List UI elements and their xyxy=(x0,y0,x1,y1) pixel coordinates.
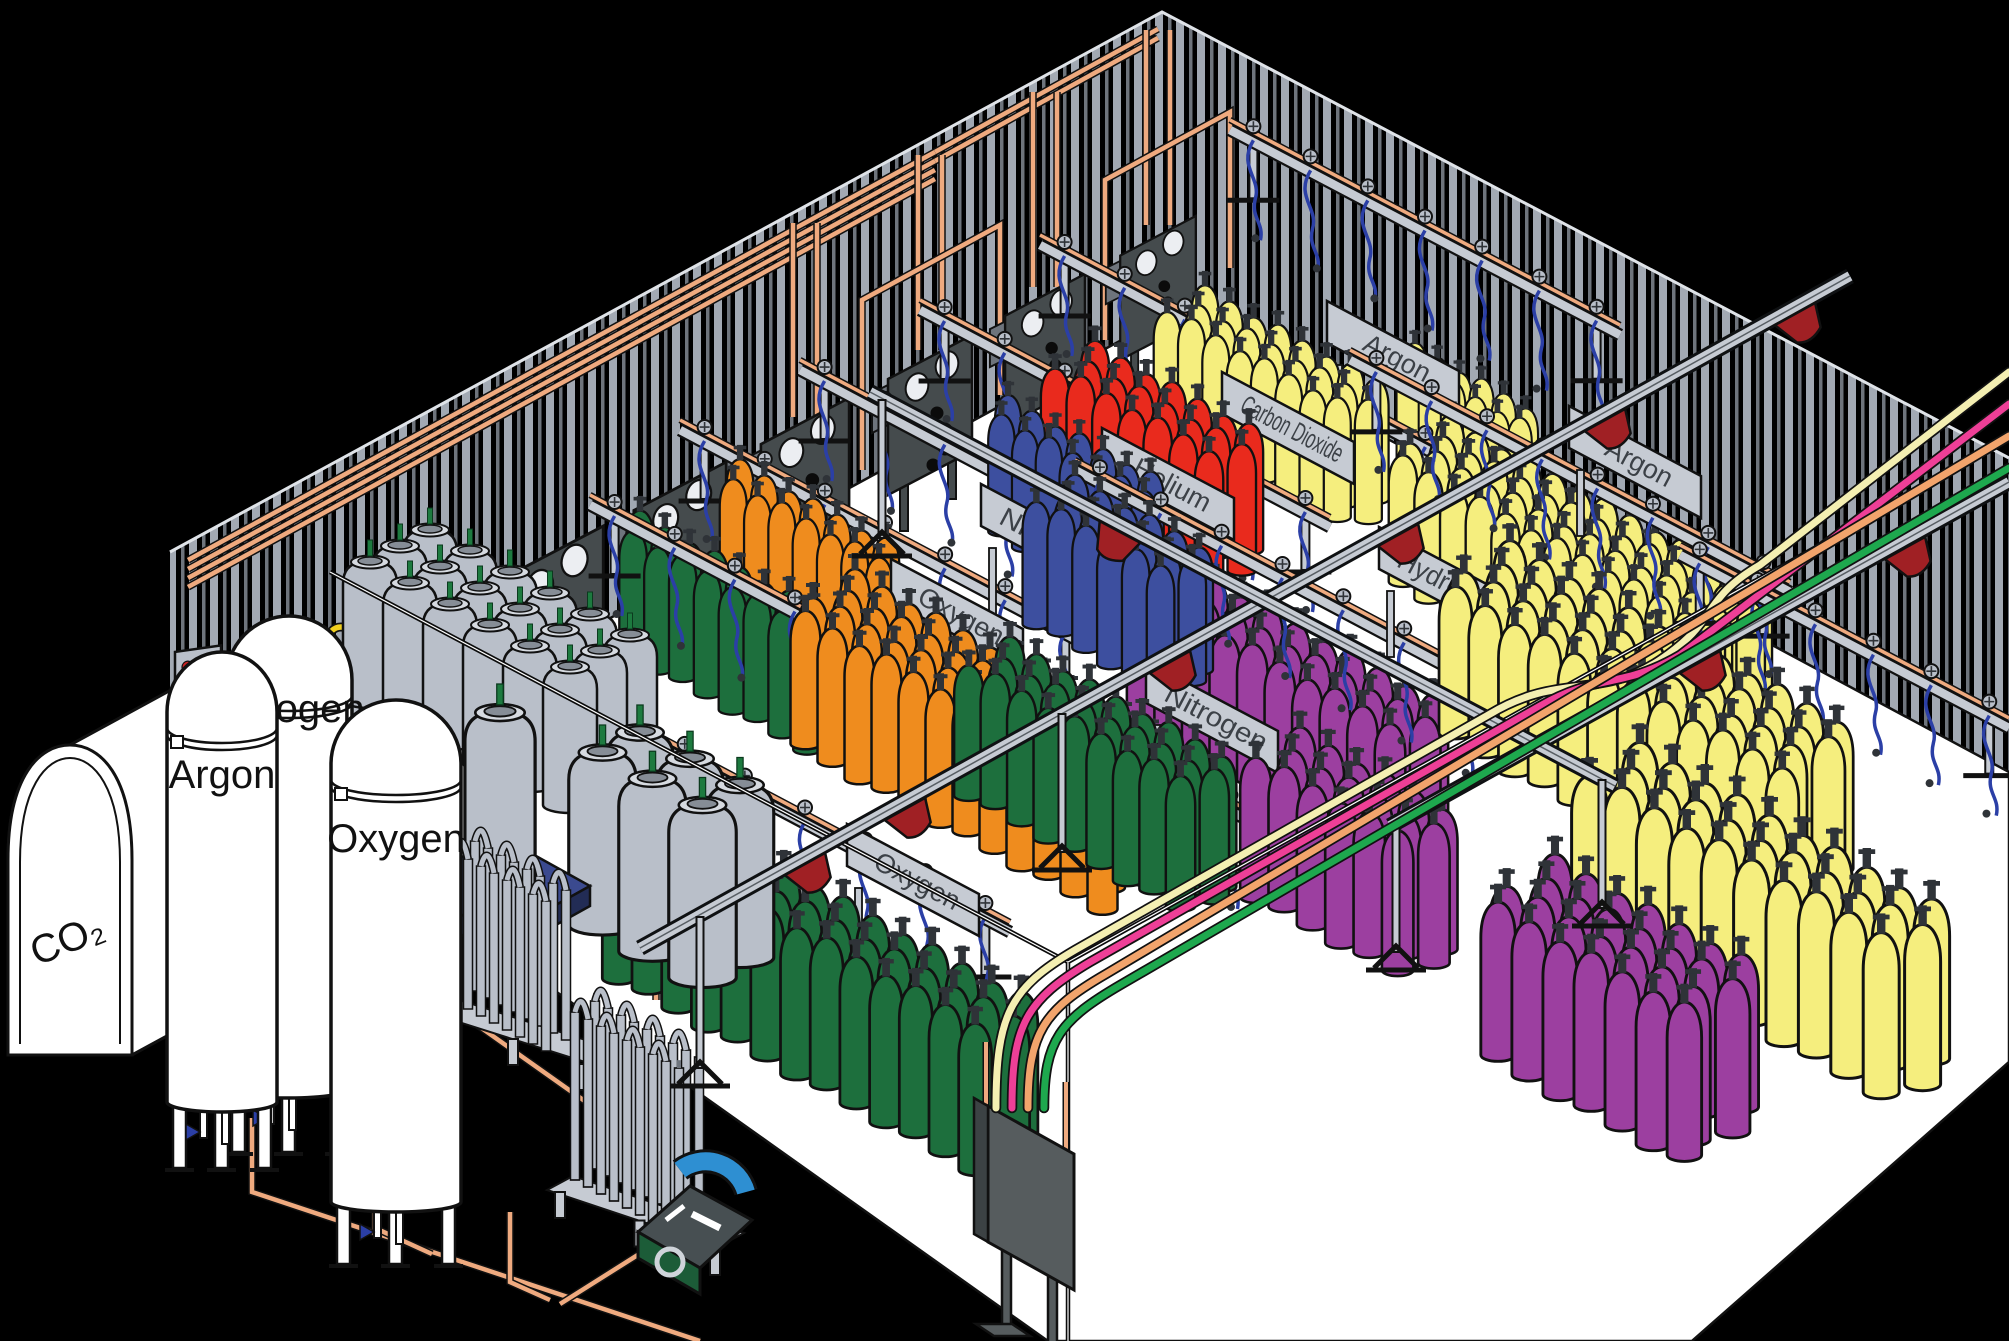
isometric-gas-plant-scene: ArgonCarbon DioxideHeliumNitrogenOxygenA… xyxy=(0,0,2009,1341)
gas-cylinder xyxy=(818,612,848,767)
gas-tube xyxy=(623,1032,632,1208)
gas-cylinder xyxy=(791,595,821,750)
gas-cylinder xyxy=(1086,718,1115,869)
gas-tube xyxy=(610,1025,619,1201)
gas-cylinder xyxy=(981,658,1010,809)
gas-cylinder xyxy=(1863,913,1899,1098)
gas-cylinder xyxy=(840,939,873,1109)
gas-cylinder xyxy=(1905,905,1941,1090)
gas-tube xyxy=(584,1011,593,1187)
gas-cylinder xyxy=(1113,735,1142,886)
gas-cylinder xyxy=(899,968,932,1138)
gas-cylinder xyxy=(1766,861,1802,1046)
gas-tube xyxy=(490,866,499,1023)
gas-cylinder xyxy=(1543,923,1578,1101)
gas-cylinder xyxy=(1798,873,1834,1058)
gas-cylinder xyxy=(926,673,956,828)
storage-tank-oxygen: Oxygen xyxy=(327,700,465,1266)
gas-cylinder xyxy=(1047,494,1075,636)
gas-cylinder xyxy=(1636,973,1671,1151)
gas-cylinder xyxy=(1512,903,1547,1081)
gas-cylinder xyxy=(1139,743,1168,894)
gas-cylinder xyxy=(810,920,843,1090)
tank-label: Oxygen xyxy=(327,817,465,861)
gas-cylinder xyxy=(719,573,747,715)
gas-cylinder xyxy=(1072,511,1100,653)
gas-tube xyxy=(477,859,486,1016)
gas-cylinder xyxy=(872,638,902,793)
gas-cylinder xyxy=(929,987,962,1157)
gas-tube xyxy=(503,873,512,1030)
gas-tube xyxy=(464,852,473,1009)
gas-cylinder xyxy=(870,958,903,1128)
gas-cylinder xyxy=(1605,953,1640,1131)
gas-tube xyxy=(571,1004,580,1180)
gas-cylinder xyxy=(1481,884,1516,1062)
gas-cylinder xyxy=(1574,934,1609,1112)
gas-cylinder xyxy=(1023,487,1051,629)
gas-tube xyxy=(636,1039,645,1215)
gas-cylinder xyxy=(1831,893,1867,1078)
gas-tube xyxy=(542,894,551,1051)
gas-cylinder xyxy=(1667,984,1702,1162)
gas-cylinder xyxy=(781,910,814,1080)
plant-diagram: ArgonCarbon DioxideHeliumNitrogenOxygenA… xyxy=(0,0,2009,1341)
gas-tube xyxy=(562,883,571,1040)
gas-tube xyxy=(529,887,538,1044)
storage-tank-argon: Argon xyxy=(165,652,279,1170)
gas-tube xyxy=(516,880,525,1037)
tank-label: Argon xyxy=(169,753,276,797)
gas-cylinder xyxy=(1715,960,1750,1138)
gas-cylinder xyxy=(845,630,875,785)
gas-tube xyxy=(597,1018,606,1194)
gas-tube xyxy=(649,1046,658,1222)
gas-cylinder xyxy=(1418,806,1450,968)
